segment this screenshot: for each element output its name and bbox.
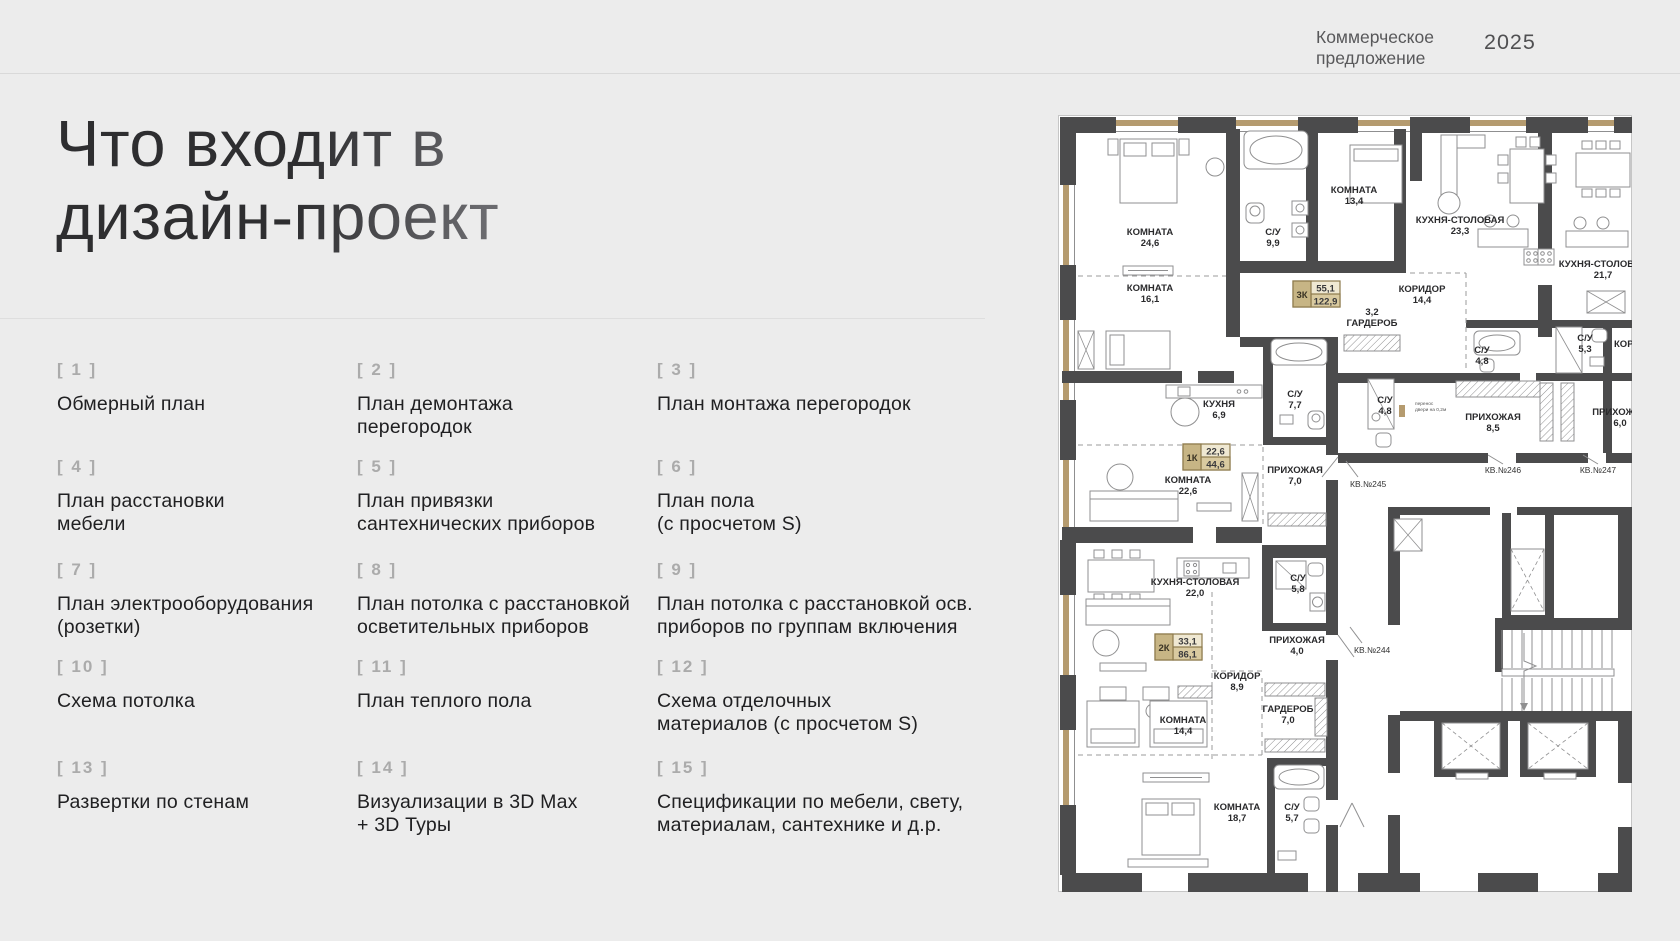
item-label: План теплого пола — [357, 690, 657, 713]
item-label: План монтажа перегородок — [657, 393, 997, 416]
room-label: КОРИДОР — [1399, 284, 1447, 295]
room-label: КУХНЯ-СТОЛОВАЯ — [1416, 215, 1505, 226]
room-label: КОМНАТА — [1160, 715, 1207, 726]
header-brand: Коммерческое предложение — [1316, 27, 1434, 69]
list-item: [ 10 ]Схема потолка — [57, 657, 357, 758]
room-label: С/У — [1287, 389, 1303, 400]
room-label: С/У — [1474, 345, 1490, 356]
closet-hatch — [1561, 383, 1574, 441]
room-area-label: 7,7 — [1288, 400, 1301, 411]
bathtub-icon — [1244, 131, 1308, 169]
item-label: Визуализации в 3D Max + 3D Туры — [357, 791, 657, 836]
wardrobe-icon — [1394, 519, 1422, 551]
closet-hatch — [1456, 381, 1540, 397]
floor-plan-svg: КОМНАТА24,6КОМНАТА16,1С/У9,9КОМНАТА13,4К… — [1058, 115, 1632, 892]
list-item: [ 4 ]План расстановки мебели — [57, 457, 357, 560]
toilet-icon — [1246, 203, 1264, 223]
cooktop-icon — [1538, 249, 1554, 265]
unit-number-label: КВ.№244 — [1354, 645, 1391, 655]
apartment-living-area: 33,1 — [1178, 637, 1197, 648]
item-label: План электрооборудования (розетки) — [57, 593, 357, 638]
apartment-type-label: 1К — [1186, 453, 1197, 464]
room-area-label: 14,4 — [1174, 726, 1193, 737]
list-item: [ 6 ]План пола (с просчетом S) — [657, 457, 997, 560]
list-item: [ 8 ]План потолка с расстановкой осветит… — [357, 560, 657, 657]
wardrobe-icon — [1242, 473, 1258, 521]
closet-hatch — [1265, 739, 1325, 752]
item-label: План потолка с расстановкой осв. приборо… — [657, 593, 997, 638]
room-area-label: 23,3 — [1451, 226, 1470, 237]
room-label: КУХНЯ-СТОЛОВАЯ — [1151, 577, 1240, 588]
room-area-label: 18,7 — [1228, 813, 1247, 824]
room-label: С/У — [1290, 573, 1306, 584]
unit-number-label: КВ.№245 — [1350, 479, 1387, 489]
room-label: КОМНАТА — [1165, 475, 1212, 486]
room-area-label: 8,9 — [1230, 682, 1243, 693]
closet-hatch — [1268, 513, 1326, 526]
item-label: План демонтажа перегородок — [357, 393, 657, 438]
room-area-label: 6,9 — [1212, 410, 1225, 421]
room-area-label: 4,8 — [1378, 406, 1391, 417]
page-title: Что входит в дизайн-проект — [56, 108, 499, 254]
wardrobe-icon — [1587, 291, 1625, 313]
bathtub-icon — [1271, 339, 1327, 365]
list-item: [ 3 ]План монтажа перегородок — [657, 360, 997, 457]
room-area-label: 4,0 — [1290, 646, 1303, 657]
item-label: Схема потолка — [57, 690, 357, 713]
room-label: С/У — [1265, 227, 1281, 238]
toilet-icon — [1304, 797, 1319, 811]
item-label: Развертки по стенам — [57, 791, 357, 814]
room-label: С/У — [1577, 333, 1593, 344]
room-area-label: ГАРДЕРОБ — [1347, 318, 1398, 329]
cooktop-icon — [1184, 561, 1199, 576]
top-divider — [0, 73, 1680, 74]
room-area-label: 13,4 — [1345, 196, 1364, 207]
room-label: КУХНЯ-СТОЛОВАЯ — [1559, 259, 1632, 270]
closet-hatch — [1178, 686, 1212, 698]
room-area-label: 7,0 — [1288, 476, 1301, 487]
room-area-label: 6,0 — [1613, 418, 1626, 429]
room-label: КОМНАТА — [1214, 802, 1261, 813]
item-label: Схема отделочных материалов (с просчетом… — [657, 690, 997, 735]
room-label: ПРИХОЖАЯ — [1465, 412, 1521, 423]
room-label: С/У — [1284, 802, 1300, 813]
room-label: КОРИДОР — [1614, 339, 1632, 350]
room-area-label: 14,4 — [1413, 295, 1432, 306]
list-item: [ 14 ]Визуализации в 3D Max + 3D Туры — [357, 758, 657, 836]
item-label: План пола (с просчетом S) — [657, 490, 997, 535]
room-area-label: 22,0 — [1186, 588, 1205, 599]
apartment-total-area: 122,9 — [1314, 297, 1338, 308]
item-number: [ 13 ] — [57, 758, 357, 778]
item-number: [ 3 ] — [657, 360, 997, 380]
room-label: КОМНАТА — [1331, 185, 1378, 196]
toilet-icon — [1308, 411, 1324, 429]
room-label: КУХНЯ — [1203, 399, 1235, 410]
list-item: [ 13 ]Развертки по стенам — [57, 758, 357, 836]
item-number: [ 2 ] — [357, 360, 657, 380]
room-area-label: 22,6 — [1179, 486, 1198, 497]
apartment-total-area: 86,1 — [1178, 650, 1197, 661]
room-area-label: 7,0 — [1281, 715, 1294, 726]
bathtub-icon — [1274, 765, 1324, 789]
list-item: [ 12 ]Схема отделочных материалов (с про… — [657, 657, 997, 758]
item-number: [ 5 ] — [357, 457, 657, 477]
room-label: ПРИХОЖАЯ — [1592, 407, 1632, 418]
unit-number-label: КВ.№246 — [1485, 465, 1522, 475]
room-area-label: 16,1 — [1141, 294, 1160, 305]
items-grid: [ 1 ]Обмерный план [ 2 ]План демонтажа п… — [57, 360, 997, 836]
slide: Коммерческое предложение 2025 Что входит… — [0, 0, 1680, 941]
list-item: [ 1 ]Обмерный план — [57, 360, 357, 457]
room-area-label: 5,8 — [1291, 584, 1304, 595]
list-item: [ 11 ]План теплого пола — [357, 657, 657, 758]
room-label: ГАРДЕРОБ — [1263, 704, 1314, 715]
item-number: [ 14 ] — [357, 758, 657, 778]
item-number: [ 12 ] — [657, 657, 997, 677]
closet-hatch — [1265, 683, 1325, 696]
closet-hatch — [1344, 335, 1400, 351]
room-area-label: 24,6 — [1141, 238, 1160, 249]
bidet-icon — [1304, 819, 1319, 833]
room-label: ПРИХОЖАЯ — [1267, 465, 1323, 476]
item-label: План привязки сантехнических приборов — [357, 490, 657, 535]
item-number: [ 8 ] — [357, 560, 657, 580]
item-number: [ 4 ] — [57, 457, 357, 477]
apartment-type-label: 2К — [1158, 643, 1169, 654]
header-year: 2025 — [1484, 30, 1536, 55]
room-area-label: 5,3 — [1578, 344, 1591, 355]
list-item: [ 2 ]План демонтажа перегородок — [357, 360, 657, 457]
toilet-icon — [1592, 329, 1607, 342]
room-area-label: 21,7 — [1594, 270, 1613, 281]
apartment-living-area: 22,6 — [1206, 447, 1225, 458]
item-number: [ 15 ] — [657, 758, 997, 778]
list-item: [ 5 ]План привязки сантехнических прибор… — [357, 457, 657, 560]
item-label: План расстановки мебели — [57, 490, 357, 535]
room-label: КОМНАТА — [1127, 283, 1174, 294]
list-item: [ 9 ]План потолка с расстановкой осв. пр… — [657, 560, 997, 657]
item-number: [ 6 ] — [657, 457, 997, 477]
room-label: КОМНАТА — [1127, 227, 1174, 238]
item-number: [ 7 ] — [57, 560, 357, 580]
floor-plan: КОМНАТА24,6КОМНАТА16,1С/У9,9КОМНАТА13,4К… — [1058, 115, 1632, 892]
item-label: Спецификации по мебели, свету, материала… — [657, 791, 997, 836]
room-area-label: 9,9 — [1266, 238, 1279, 249]
unit-number-label: КВ.№247 — [1580, 465, 1617, 475]
toilet-icon — [1308, 563, 1323, 576]
apartment-living-area: 55,1 — [1316, 284, 1335, 295]
closet-hatch — [1315, 698, 1327, 736]
plan-note: перенос — [1415, 402, 1434, 407]
item-number: [ 11 ] — [357, 657, 657, 677]
item-number: [ 9 ] — [657, 560, 997, 580]
plan-note: двери на 0,2м — [1415, 407, 1446, 413]
toilet-icon — [1376, 433, 1391, 447]
room-area-label: 5,7 — [1285, 813, 1298, 824]
room-area-label: 8,5 — [1486, 423, 1500, 434]
room-area-label: 4,8 — [1475, 356, 1488, 367]
door-move-mark — [1399, 405, 1405, 417]
item-label: Обмерный план — [57, 393, 357, 416]
room-label: 3,2 — [1365, 307, 1378, 318]
item-number: [ 10 ] — [57, 657, 357, 677]
item-label: План потолка с расстановкой осветительны… — [357, 593, 657, 638]
room-label: С/У — [1377, 395, 1393, 406]
room-label: ПРИХОЖАЯ — [1269, 635, 1325, 646]
title-divider — [0, 318, 985, 319]
room-label: КОРИДОР — [1214, 671, 1262, 682]
wardrobe-icon — [1078, 331, 1094, 369]
apartment-type-label: 3К — [1296, 290, 1307, 301]
apartment-total-area: 44,6 — [1206, 460, 1225, 471]
list-item: [ 7 ]План электрооборудования (розетки) — [57, 560, 357, 657]
closet-hatch — [1540, 383, 1553, 441]
item-number: [ 1 ] — [57, 360, 357, 380]
list-item: [ 15 ]Спецификации по мебели, свету, мат… — [657, 758, 997, 836]
